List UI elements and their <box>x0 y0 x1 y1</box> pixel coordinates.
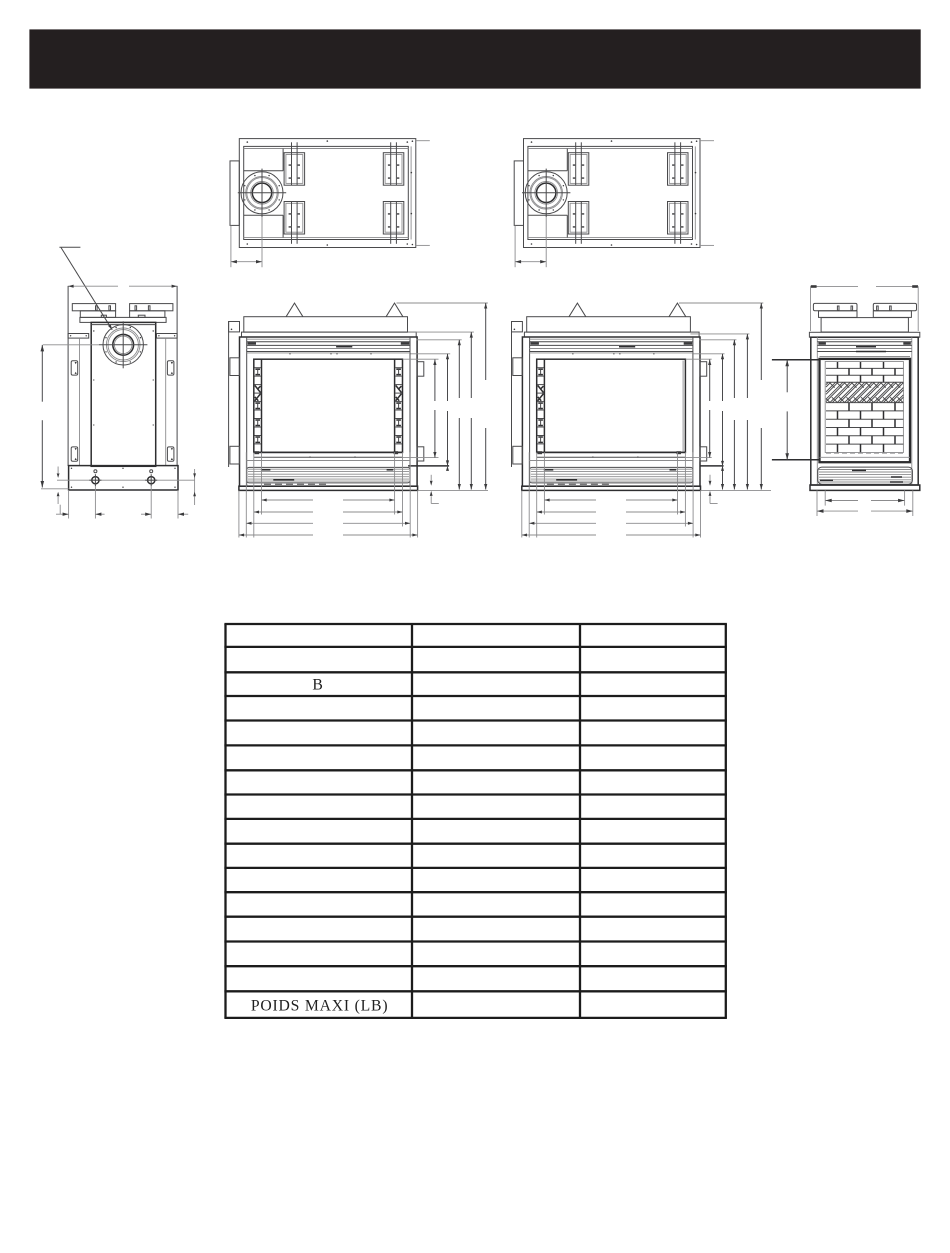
svg-text:POIDS MAXI (LB): POIDS MAXI (LB) <box>251 997 389 1014</box>
svg-text:B: B <box>312 677 323 694</box>
